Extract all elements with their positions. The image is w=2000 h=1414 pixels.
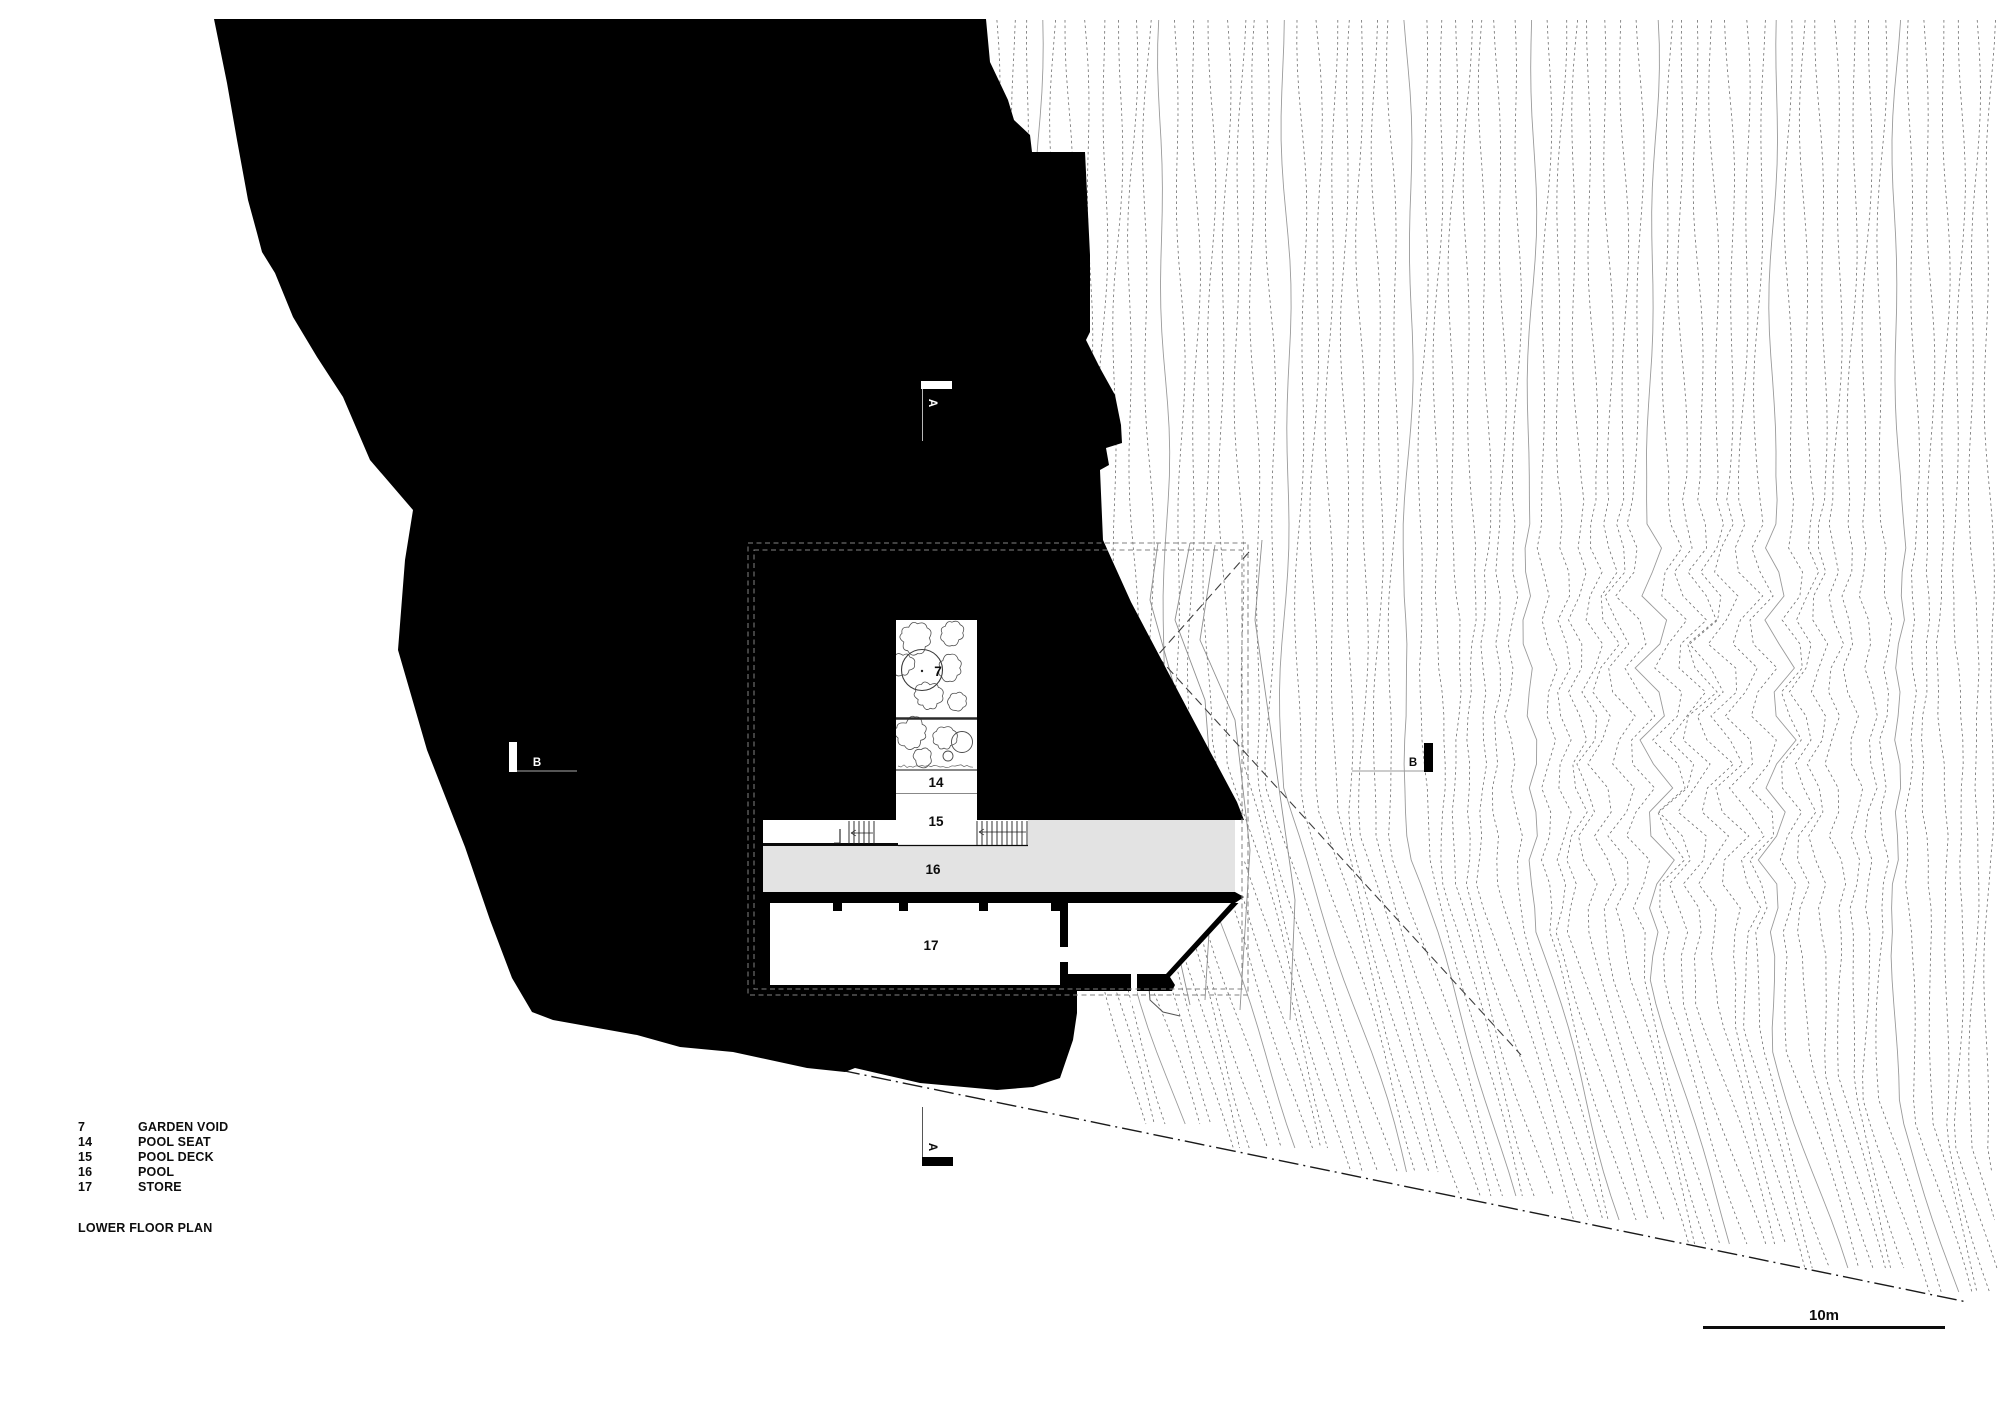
contour-line (1523, 20, 1619, 1220)
legend-num: 17 (78, 1180, 138, 1195)
contour-line (1725, 20, 1812, 1268)
contour-line (1876, 20, 1941, 1292)
contour-line (1340, 20, 1460, 1196)
legend-label: GARDEN VOID (138, 1120, 228, 1135)
legend-num: 15 (78, 1150, 138, 1165)
contour-line (1295, 20, 1415, 1172)
section-letter-a-bottom: A (926, 1143, 938, 1151)
boundary-line (840, 1070, 1967, 1302)
contour-line (1605, 20, 1706, 1244)
legend-row: 7 GARDEN VOID (78, 1120, 228, 1135)
partition-wall (1060, 903, 1068, 985)
room-label-pool: 16 (925, 862, 941, 877)
contour-line (1891, 20, 1959, 1292)
contour-line (1969, 20, 1995, 1220)
tree-trunk-dot (921, 670, 923, 672)
contour-line (1234, 20, 1362, 1172)
contour-line (1203, 20, 1328, 1148)
drawing-svg: 7 14 15 16 17 A A B B 10m (0, 0, 2000, 1414)
legend-row: 16 POOL (78, 1165, 228, 1180)
legend-num: 14 (78, 1135, 138, 1150)
section-marker-a-bottom: A (922, 1107, 953, 1166)
room-label-pool-deck: 15 (928, 814, 944, 829)
contour-line (1280, 20, 1407, 1172)
floor-plan-canvas: 7 14 15 16 17 A A B B 10m 7 GARDEN VOID … (0, 0, 2000, 1414)
section-letter-a-top: A (926, 399, 938, 407)
contour-line (1418, 20, 1522, 1196)
store-room (770, 903, 1060, 985)
contour-line (1219, 20, 1352, 1172)
contour-line (1659, 20, 1766, 1244)
contour-line (1371, 20, 1491, 1196)
contour-line (1807, 20, 1885, 1268)
contour-line (1758, 20, 1848, 1268)
contour-line (1953, 20, 1997, 1268)
contour-line (1678, 20, 1775, 1244)
contour-line (1463, 20, 1574, 1220)
contour-line (1158, 20, 1295, 1148)
store-room-east (1068, 903, 1231, 974)
legend-label: POOL DECK (138, 1150, 214, 1165)
legend-label: POOL (138, 1165, 174, 1180)
room-label-garden-void: 7 (934, 664, 942, 679)
contour-line (1448, 20, 1554, 1196)
legend-num: 7 (78, 1120, 138, 1135)
contour-line (1825, 20, 1891, 1268)
contour-line (1905, 20, 1972, 1292)
legend-row: 17 STORE (78, 1180, 228, 1195)
contour-line (1588, 20, 1695, 1244)
legend-label: STORE (138, 1180, 182, 1195)
section-letter-b-right: B (1409, 757, 1417, 769)
legend-row: 15 POOL DECK (78, 1150, 228, 1165)
pool-end-gap (1235, 820, 1244, 903)
contour-line (1690, 20, 1786, 1244)
contour-line (1537, 20, 1636, 1220)
contour-line (1577, 20, 1689, 1244)
partition-door-gap (1060, 947, 1068, 962)
contour-line (1265, 20, 1397, 1172)
contour-line (1188, 20, 1321, 1148)
contour-line (1325, 20, 1438, 1172)
pool-deck-band (763, 820, 1042, 846)
room-label-pool-seat: 14 (928, 775, 944, 790)
legend: 7 GARDEN VOID 14 POOL SEAT 15 POOL DECK … (78, 1120, 228, 1195)
section-marker-b-right: B (1352, 743, 1433, 772)
pool-water (763, 846, 1235, 892)
room-label-store: 17 (923, 938, 938, 953)
legend-row: 14 POOL SEAT (78, 1135, 228, 1150)
contour-line (1708, 20, 1805, 1268)
contour-line (1653, 20, 1747, 1244)
contour-line (1842, 20, 1904, 1268)
contour-line (1567, 20, 1664, 1220)
legend-label: POOL SEAT (138, 1135, 211, 1150)
pool-water-upper (1028, 820, 1235, 846)
plan-title: LOWER FLOOR PLAN (78, 1221, 212, 1235)
contour-line (1556, 20, 1648, 1220)
legend-num: 16 (78, 1165, 138, 1180)
scale-label: 10m (1809, 1307, 1839, 1324)
contour-line (1984, 20, 1996, 1172)
contour-line (1250, 20, 1378, 1172)
section-letter-b-left: B (533, 757, 541, 769)
contour-line (1635, 20, 1729, 1244)
pool-wall (763, 892, 1235, 903)
contour-line (1789, 20, 1873, 1268)
contour-line (1750, 20, 1830, 1268)
contour-line (1936, 20, 1989, 1292)
scale-bar: 10m (1703, 1307, 1945, 1329)
contour-line (1505, 20, 1608, 1220)
contour-line (1403, 20, 1516, 1196)
contour-line (1780, 20, 1858, 1268)
contour-line (1922, 20, 1977, 1292)
